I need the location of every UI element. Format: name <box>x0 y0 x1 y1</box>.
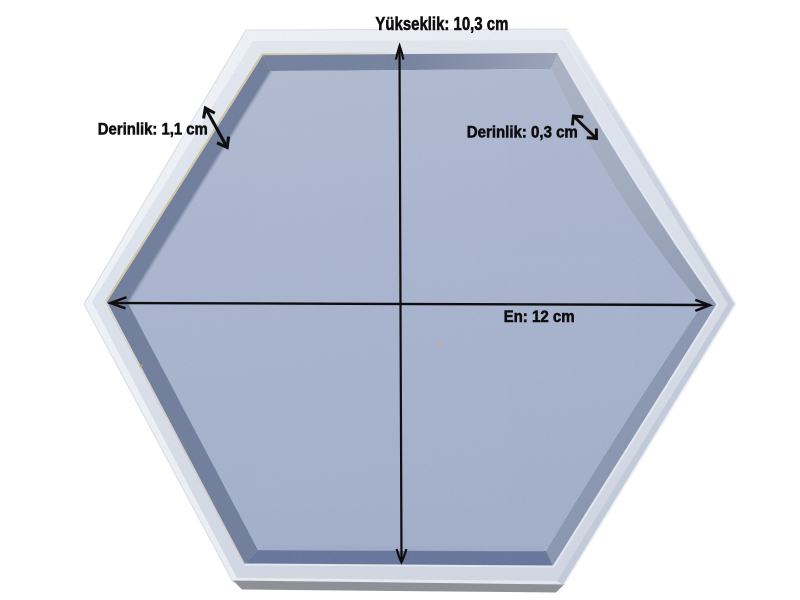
svg-text:Yükseklik: 10,3 cm: Yükseklik: 10,3 cm <box>375 13 508 34</box>
svg-text:En: 12 cm: En: 12 cm <box>504 308 575 326</box>
svg-text:Derinlik: 0,3 cm: Derinlik: 0,3 cm <box>467 124 578 142</box>
svg-text:Derinlik: 1,1 cm: Derinlik: 1,1 cm <box>98 121 208 139</box>
